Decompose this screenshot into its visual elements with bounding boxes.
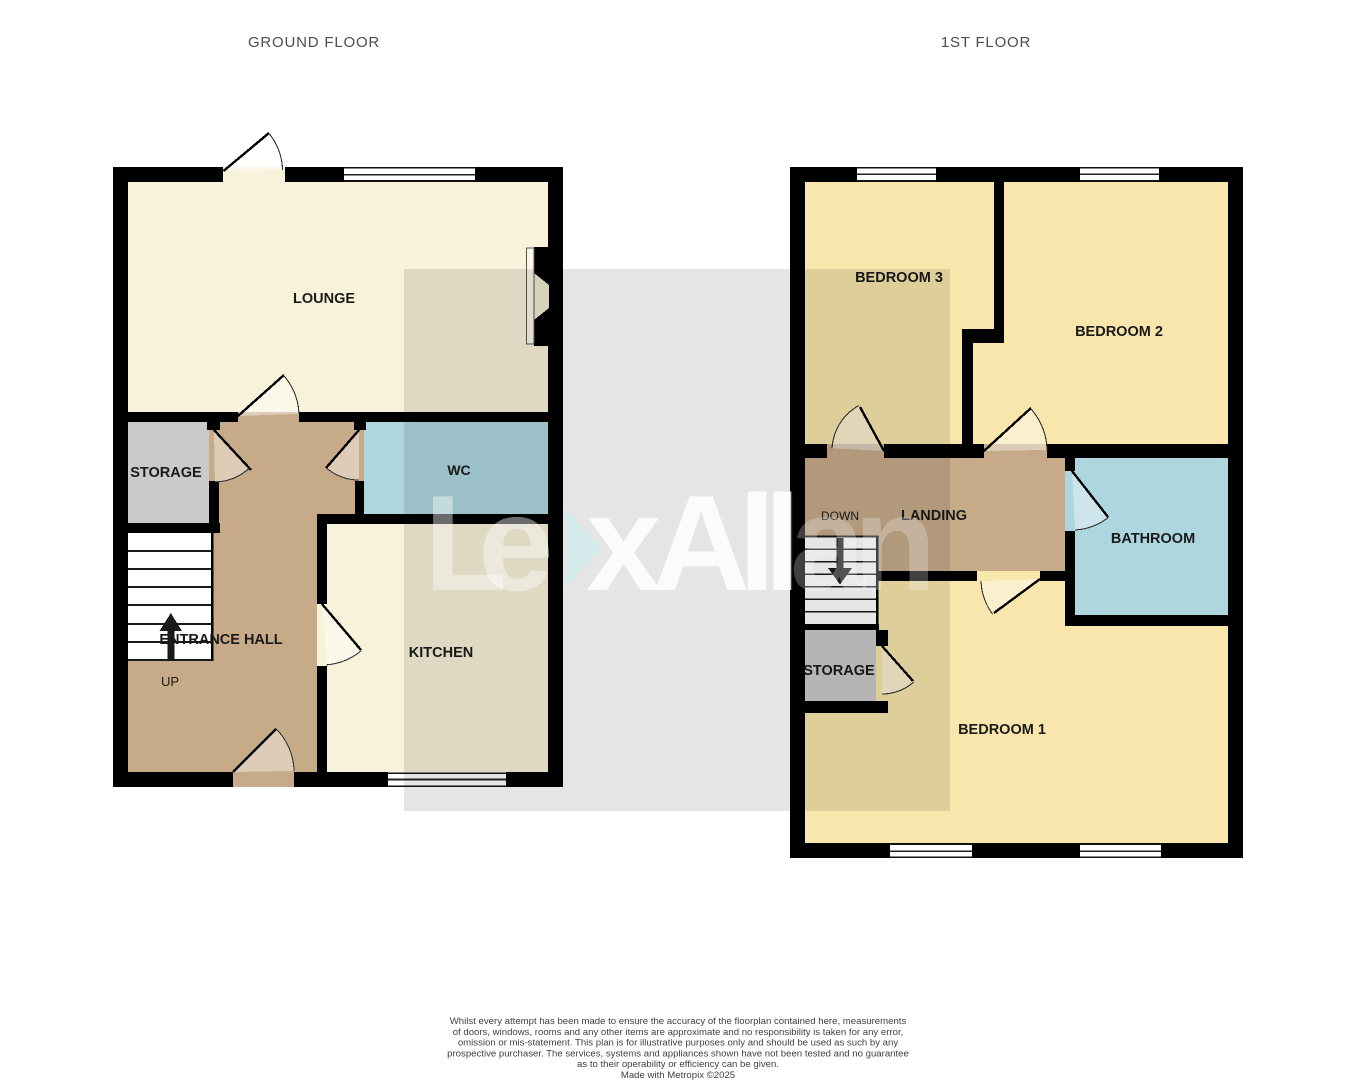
svg-text:LOUNGE: LOUNGE (293, 291, 355, 307)
svg-text:ENTRANCE HALL: ENTRANCE HALL (159, 632, 282, 648)
svg-text:BATHROOM: BATHROOM (1111, 531, 1195, 547)
svg-text:GROUND FLOOR: GROUND FLOOR (248, 34, 380, 51)
svg-text:prospective purchaser. The ser: prospective purchaser. The services, sys… (447, 1048, 909, 1059)
svg-text:BEDROOM 1: BEDROOM 1 (958, 722, 1046, 738)
svg-text:1ST FLOOR: 1ST FLOOR (941, 34, 1031, 51)
svg-text:omission or mis-statement. Thi: omission or mis-statement. This plan is … (458, 1038, 898, 1049)
svg-text:Made with Metropix ©2025: Made with Metropix ©2025 (621, 1070, 735, 1080)
svg-text:Whilst every attempt has been: Whilst every attempt has been made to en… (450, 1016, 907, 1027)
svg-text:STORAGE: STORAGE (130, 465, 202, 481)
svg-text:of doors, windows, rooms and a: of doors, windows, rooms and any other i… (453, 1027, 904, 1038)
svg-text:e: e (478, 467, 554, 619)
svg-text:x: x (586, 467, 662, 619)
svg-text:as to their operability or eff: as to their operability or efficiency ca… (577, 1059, 779, 1070)
svg-text:UP: UP (161, 674, 179, 689)
svg-text:BEDROOM 2: BEDROOM 2 (1075, 324, 1163, 340)
